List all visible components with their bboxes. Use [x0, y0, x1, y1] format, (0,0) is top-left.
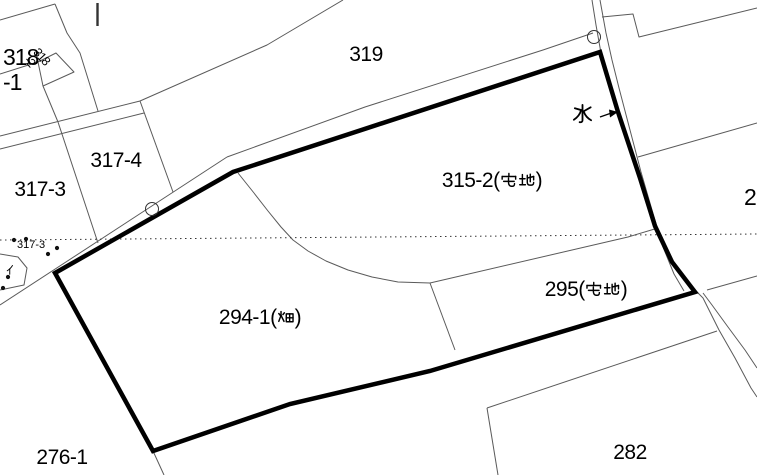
parcel-boundary-bold [55, 52, 695, 451]
kanji-chi-icon [603, 281, 621, 304]
parcel-label-2-partial: 2 [744, 186, 756, 208]
water-label: 水 [571, 103, 594, 134]
parcel-label-276-1: 276-1 [36, 447, 87, 469]
i-mark-label: イ [5, 256, 17, 284]
parcel-label-319: 319 [349, 44, 383, 66]
parcel-label-294-1: 294-1(畑) [219, 307, 301, 335]
label-text: 294-1( [219, 306, 277, 329]
kanji-taku-icon [500, 172, 518, 195]
parcel-label-315-2: 315-2(宅地) [442, 170, 542, 198]
kanji-hatake-icon [277, 309, 295, 332]
katakana-i-icon [5, 259, 17, 281]
kanji-chi-icon [518, 172, 536, 195]
label-text: ) [536, 169, 543, 192]
label-text: ) [295, 306, 302, 329]
parcel-label-317-4: 317-4 [90, 150, 141, 172]
parcel-label-282: 282 [613, 442, 647, 464]
label-text: 315-2( [442, 169, 500, 192]
parcel-label-317-3: 317-3 [14, 179, 65, 201]
map-linework [0, 0, 757, 475]
parcel-label-317-3-small: 317-3 [17, 240, 45, 251]
kanji-taku-icon [585, 281, 603, 304]
label-text: 295( [545, 278, 585, 301]
cadastral-map: 318 -1 318 -2 319 317-4 317-3 317-3 315-… [0, 0, 757, 475]
kanji-mizu-icon [571, 103, 594, 131]
parcel-label-295: 295(宅地) [545, 279, 628, 307]
label-text: ) [621, 278, 628, 301]
